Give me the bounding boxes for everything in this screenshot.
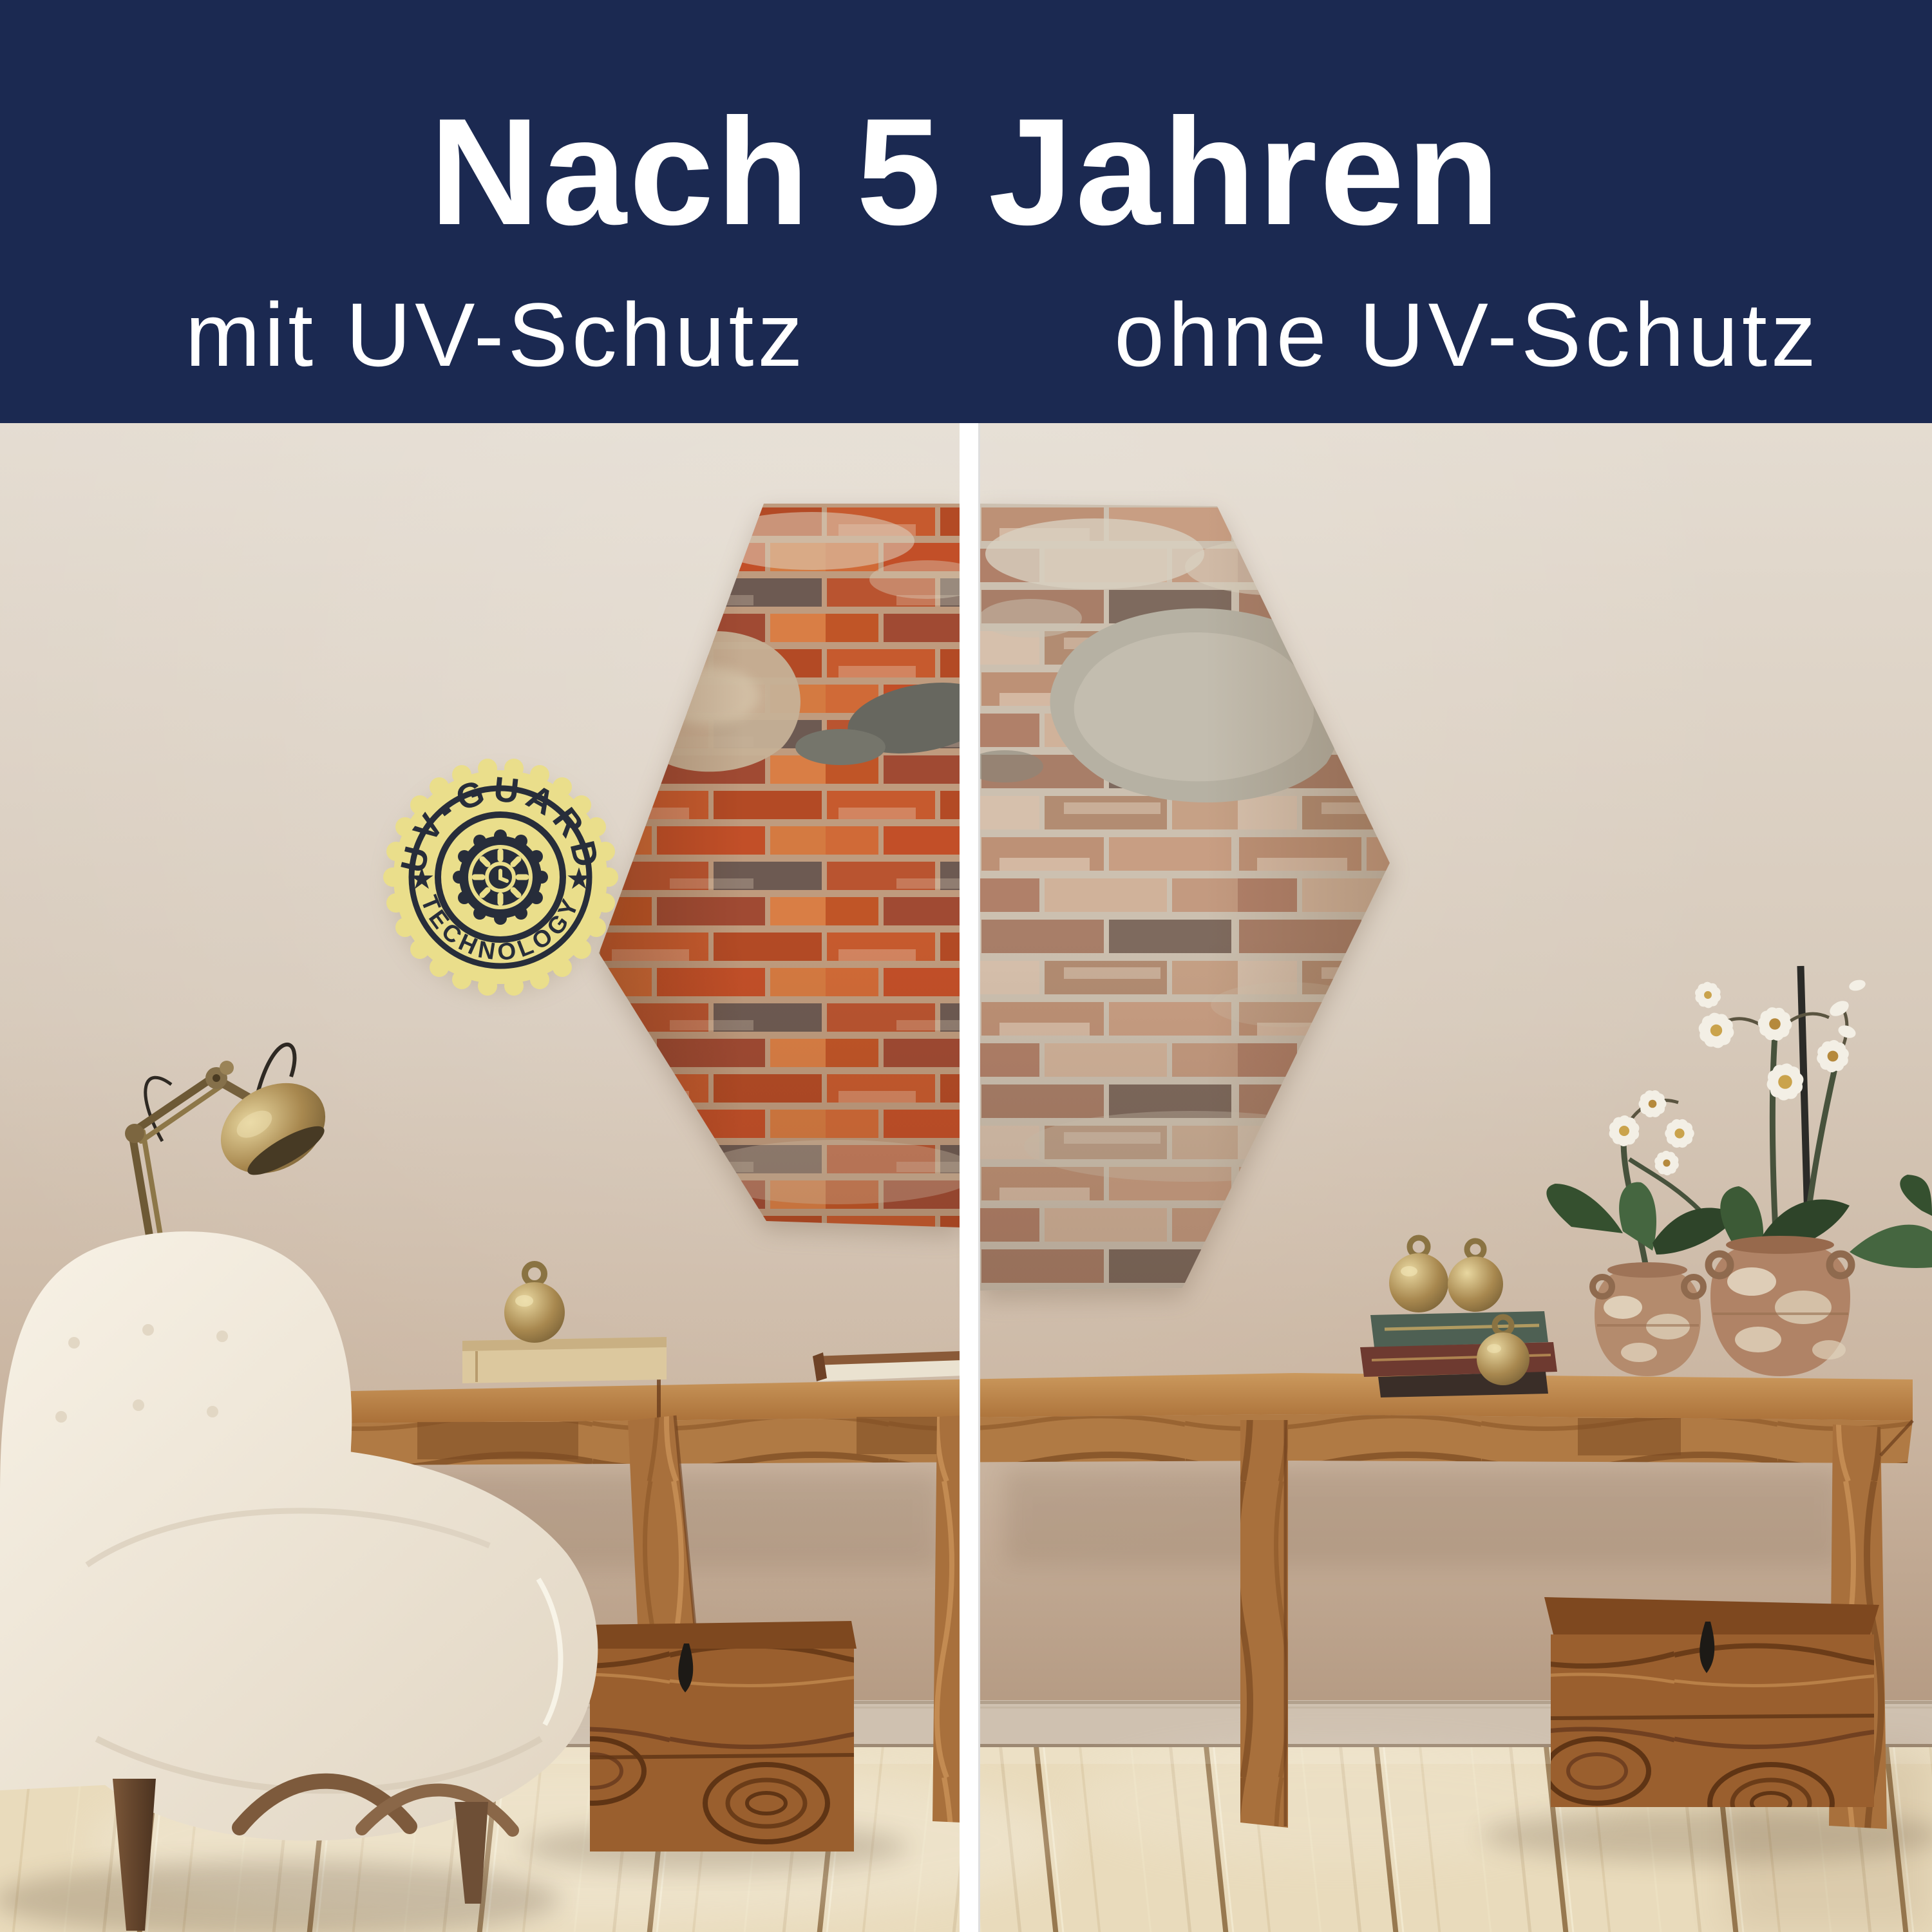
storage-chest-right [1544,1597,1879,1807]
flower-vase-small [1593,1262,1703,1376]
banner-title: Nach 5 Jahren [430,87,1502,257]
flower-vase-large [1709,1236,1851,1376]
divider-bar [960,423,980,1932]
storage-chest-left [586,1621,857,1851]
wooden-tray [462,1337,667,1383]
banner-subtitle-right: ohne UV-Schutz [1114,284,1820,385]
star-icon: ★ [408,861,435,896]
banner-subtitle-left: mit UV-Schutz [185,284,807,385]
star-icon: ★ [565,861,592,896]
product-comparison-image: UV-GUARD TECHNOLOGY ★ ★ [0,0,1932,1932]
banner: Nach 5 Jahren mit UV-Schutz ohne UV-Schu… [0,0,1932,423]
